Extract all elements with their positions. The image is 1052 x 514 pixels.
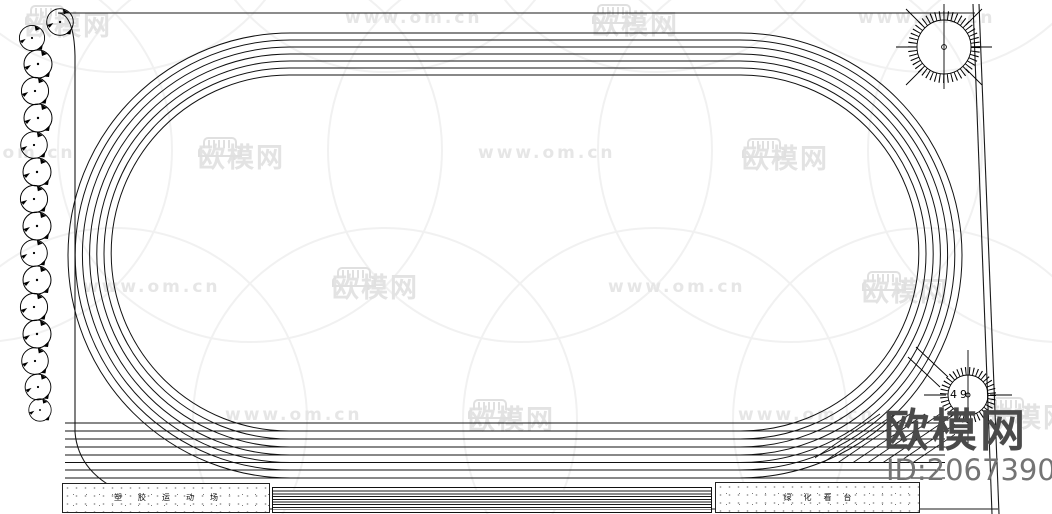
stand-right-label: 绿化看台	[784, 494, 864, 502]
tree-icon	[29, 399, 51, 421]
tree-icon	[19, 25, 44, 50]
running-track-oval	[68, 33, 962, 478]
bleacher-band	[272, 487, 712, 513]
tree-icon	[24, 104, 52, 132]
tree-icon	[25, 374, 51, 400]
site-logo: 欧模网	[884, 408, 1028, 453]
stand-left-box: 塑胶运动场	[62, 483, 270, 513]
stand-left-label: 塑胶运动场	[114, 494, 234, 502]
site-boundary	[58, 4, 999, 514]
survey-marker-north-icon	[896, 4, 992, 89]
tree-icon	[20, 293, 47, 320]
tree-icon	[23, 266, 51, 294]
straight-lanes	[65, 423, 945, 478]
tree-icon	[23, 320, 51, 348]
tree-icon	[24, 50, 52, 78]
tree-icon	[20, 185, 47, 212]
site-id: ID:2067390	[886, 456, 1052, 485]
tree-row	[19, 9, 73, 422]
tree-icon	[23, 158, 51, 186]
level-value: 49	[950, 389, 970, 400]
tree-icon	[21, 77, 48, 104]
cad-track-plan: 欧模网 www.om.cn 欧模网 www.om.cn www.om.cn 欧模…	[0, 0, 1052, 514]
tree-icon	[21, 132, 48, 159]
tree-icon	[22, 348, 49, 375]
tree-icon	[21, 240, 48, 267]
tree-icon	[23, 212, 51, 240]
